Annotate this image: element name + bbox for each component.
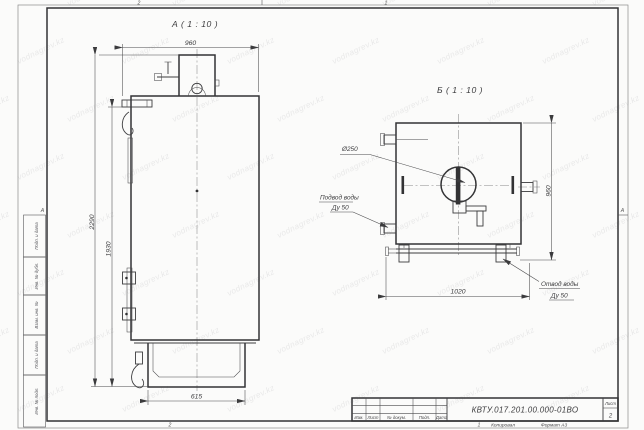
- svg-text:615: 615: [191, 394, 203, 401]
- trim-border: [18, 5, 628, 428]
- sheet-label: Лист: [604, 401, 616, 406]
- view-a: А ( 1 : 10 ): [89, 19, 259, 405]
- sheet-number: 2: [608, 414, 613, 420]
- dim-a-base-width: 615: [148, 390, 245, 405]
- drawing-canvas: 2 1 2 1 А А Подп. и дата Инв. № дубл. Вз…: [0, 0, 644, 430]
- margin-cell-label: Подп. и дата: [34, 222, 39, 250]
- margin-cell-label: Инв. № подл.: [34, 387, 39, 414]
- tb-col-podp: Подп.: [419, 415, 430, 420]
- weld-tick-left: [402, 176, 405, 194]
- view-b-door-crank: [453, 167, 486, 227]
- dim-a-height-body: 1930: [106, 107, 123, 387]
- stub-lower-left-inlet: [381, 223, 397, 235]
- view-a-center-point: [196, 190, 199, 193]
- leader-water-outlet: Отвод воды Ду 50: [503, 259, 580, 300]
- view-a-door-hardware: [122, 100, 152, 183]
- title-block: Изм. Лист № докум. Подп. Дата КВТУ.017.2…: [352, 398, 618, 429]
- margin-cell-label: Подп. и дата: [34, 341, 39, 369]
- svg-text:Подвод воды: Подвод воды: [320, 194, 359, 202]
- zone-bottom-right: 1: [478, 423, 481, 429]
- inner-frame: [47, 8, 618, 421]
- zone-row-right: А: [620, 208, 625, 214]
- footer-format: Формат А3: [541, 423, 568, 429]
- view-b: Б ( 1 : 10 ): [319, 85, 580, 300]
- weld-tick-right: [512, 176, 515, 194]
- zone-top-left: 2: [137, 1, 141, 7]
- bottom-manifold: [386, 244, 520, 262]
- svg-text:2290: 2290: [89, 214, 96, 230]
- svg-text:960: 960: [185, 40, 197, 47]
- tb-col-docnum: № докум.: [387, 415, 406, 420]
- doc-number: КВТУ.017.201.00.000-01ВО: [472, 406, 579, 415]
- view-a-latch: [132, 352, 144, 388]
- dim-b-width: 1020: [386, 257, 530, 300]
- svg-text:1930: 1930: [106, 241, 113, 256]
- dim-a-width-top: 960: [123, 40, 259, 96]
- tb-col-list: Лист: [366, 415, 378, 420]
- drawing-sheet: vodnagrev.kzvodnagrev.kzvodnagrev.kzvodn…: [0, 0, 644, 430]
- footer-copied: Копировал: [491, 423, 515, 429]
- margin-cell-label: Взам. инв. №: [34, 301, 39, 328]
- margin-strip: Подп. и дата Инв. № дубл. Взам. инв. № П…: [24, 215, 46, 427]
- zone-top-right: 1: [385, 1, 388, 7]
- dim-a-height-overall: 2290: [89, 55, 179, 387]
- svg-text:Ду 50: Ду 50: [550, 293, 568, 300]
- zone-row-left: А: [40, 208, 45, 214]
- sheet-frame: 2 1 2 1 А А: [18, 0, 628, 429]
- view-a-outline: [131, 55, 259, 387]
- tb-col-data: Дата: [435, 415, 448, 420]
- svg-text:Отвод воды: Отвод воды: [541, 280, 579, 288]
- leader-water-inlet: Подвод воды Ду 50: [319, 194, 388, 228]
- svg-text:Ду 50: Ду 50: [331, 205, 349, 212]
- svg-text:1020: 1020: [450, 289, 465, 296]
- view-a-label: А ( 1 : 10 ): [171, 19, 218, 29]
- svg-text:960: 960: [546, 185, 553, 197]
- tb-col-izm: Изм.: [354, 415, 363, 420]
- margin-cell-label: Инв. № дубл.: [34, 262, 39, 289]
- view-a-damper: [155, 62, 220, 96]
- view-a-hinges: [123, 268, 136, 332]
- stub-upper-left: [381, 134, 429, 146]
- svg-text:Ø250: Ø250: [341, 146, 358, 153]
- view-b-label: Б ( 1 : 10 ): [437, 85, 483, 95]
- zone-bottom-left: 2: [168, 423, 172, 429]
